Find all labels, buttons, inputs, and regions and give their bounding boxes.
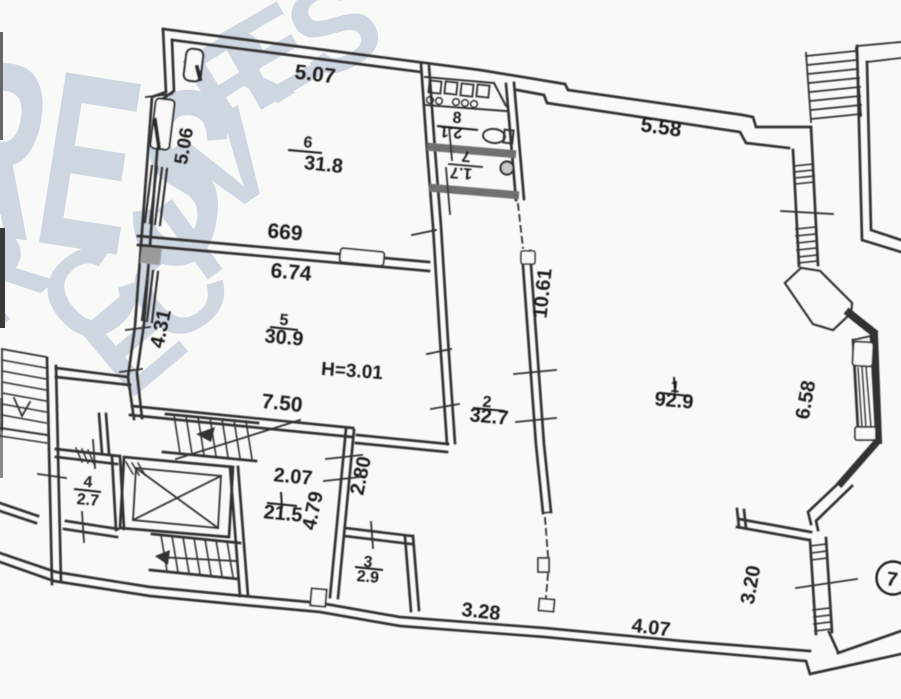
svg-text:H=3.01: H=3.01	[320, 359, 384, 384]
svg-text:2.7: 2.7	[76, 491, 100, 510]
svg-text:669: 669	[267, 220, 304, 246]
svg-text:6: 6	[303, 134, 314, 152]
svg-text:4: 4	[83, 474, 93, 492]
svg-text:6.74: 6.74	[270, 259, 313, 286]
svg-text:1.7: 1.7	[449, 163, 472, 182]
svg-text:92.9: 92.9	[654, 388, 695, 413]
svg-text:2.07: 2.07	[273, 464, 314, 489]
svg-text:3.28: 3.28	[460, 599, 501, 625]
svg-text:7.50: 7.50	[261, 390, 304, 417]
svg-text:21.5: 21.5	[263, 501, 304, 526]
svg-text:2.1: 2.1	[439, 122, 462, 141]
svg-text:7: 7	[461, 147, 471, 165]
svg-text:2.9: 2.9	[356, 568, 380, 587]
svg-text:4.07: 4.07	[630, 615, 671, 642]
svg-text:30.9: 30.9	[264, 325, 305, 350]
svg-text:32.7: 32.7	[469, 404, 510, 429]
svg-text:31.8: 31.8	[303, 152, 344, 178]
